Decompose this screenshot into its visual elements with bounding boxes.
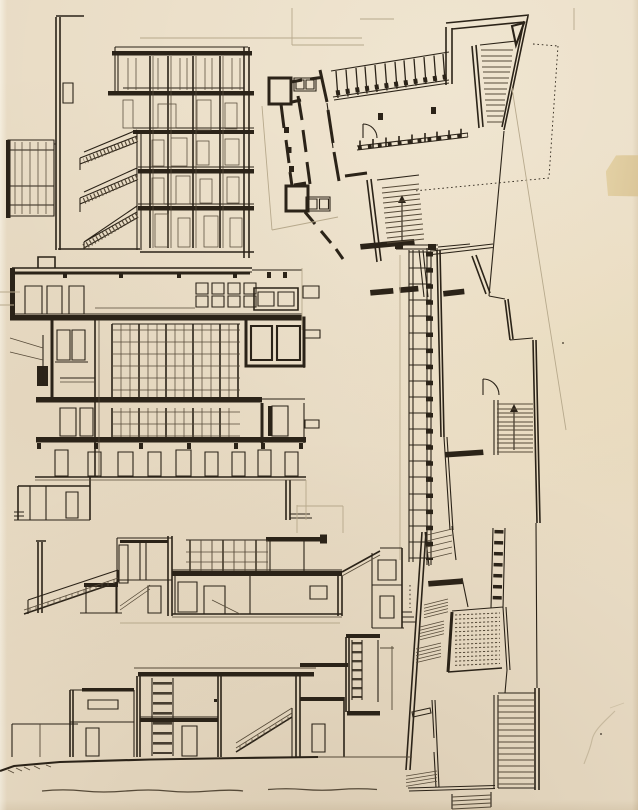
- stair-risers: [236, 708, 292, 750]
- section-lower-middle: [24, 505, 416, 628]
- hatched-ramp: [455, 613, 500, 665]
- colonnade-feet: [358, 135, 468, 148]
- plan-right-strip: [396, 244, 540, 809]
- dotted-setback: [414, 44, 558, 191]
- sketch-sheet: [0, 0, 638, 810]
- glazing-grid: [10, 308, 306, 480]
- paper-marks: [562, 342, 624, 764]
- stair-risers: [30, 552, 342, 617]
- ground-baseline: [42, 789, 377, 792]
- section-bottom: [0, 634, 412, 773]
- section-middle-left: [0, 257, 320, 520]
- ground-line: [0, 757, 318, 771]
- mid-stair-treads: [382, 184, 424, 243]
- colonnade-feet: [336, 77, 448, 94]
- plan-upper-right: [262, 8, 574, 430]
- drawing-canvas: [0, 0, 638, 810]
- stair-tread-ticks: [84, 139, 137, 161]
- stair-tread-ticks: [84, 215, 137, 247]
- window-rungs: [497, 530, 499, 606]
